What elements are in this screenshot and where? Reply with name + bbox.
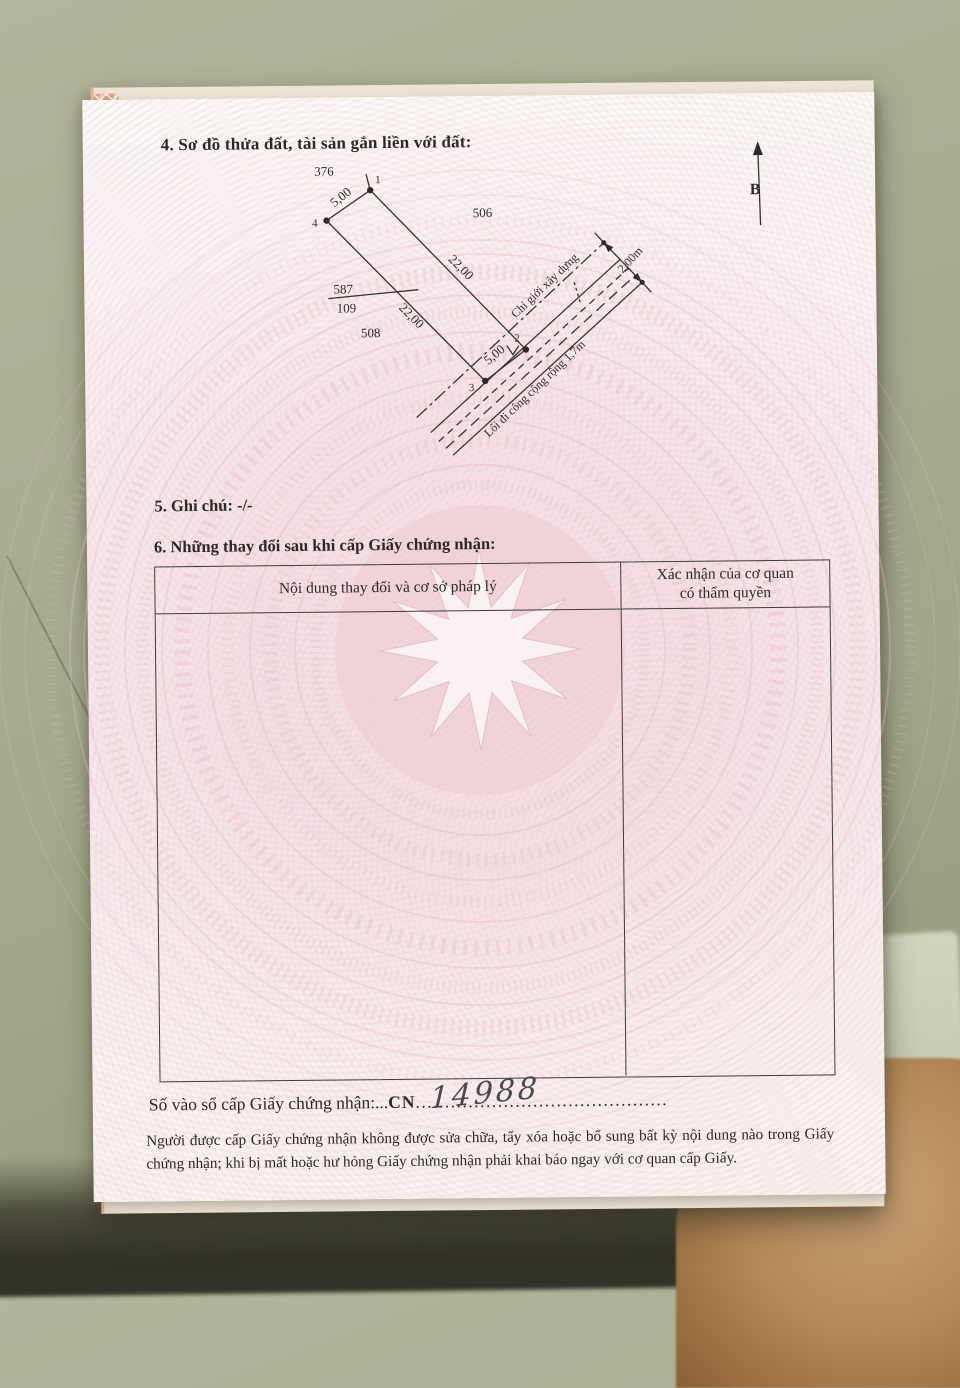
vertex1-label: 1 [375,174,381,186]
north-label: B [750,181,761,198]
construction-boundary-label: Chỉ giới xây dựng [508,250,581,320]
vertex4-label: 4 [312,218,318,230]
table-header-content: Nội dung thay đổi và cơ sở pháp lý [155,563,621,614]
dim-bottom-edge: 5,00 [481,341,508,367]
serial-label: Số vào sổ cấp Giấy chứng nhận: [149,1092,375,1114]
dim-top-edge: 5,00 [327,184,354,210]
section5-note: 5. Ghi chú: -/- [154,495,252,516]
table-header-confirmation-line2: có thẩm quyền [680,584,771,604]
table-cell-confirmation-empty [622,607,835,1075]
footer-notice: Người được cấp Giấy chứng nhận không đượ… [146,1123,834,1176]
serial-code: CN [388,1092,415,1112]
serial-dots-1: ... [375,1092,388,1112]
north-arrowhead [753,141,763,155]
dim-left-edge: 22,00 [396,300,427,331]
section6-title: 6. Những thay đổi sau khi cấp Giấy chứng… [154,534,496,558]
serial-number-line: Số vào sổ cấp Giấy chứng nhận:...CN.....… [149,1089,668,1115]
parcel-number-label: 587 [333,281,353,296]
dim-right-edge: 22,00 [446,251,477,282]
parcel-376-label: 376 [314,164,334,179]
serial-dotted-line: ........................................… [415,1089,668,1113]
vertex3-label: 3 [469,382,475,394]
construction-boundary-line [415,243,606,418]
table-body-row [156,607,835,1080]
parcel-area-label: 109 [337,300,357,315]
parcel-508-label: 508 [361,325,381,340]
changes-table: Nội dung thay đổi và cơ sở pháp lý Xác n… [154,559,835,1082]
vertex2-label: 2 [514,333,520,345]
photo-of-land-certificate: { "colors": { "paper_pink": "#f6ebed", "… [0,0,960,1280]
table-cell-content-empty [156,610,627,1081]
table-header-row: Nội dung thay đổi và cơ sở pháp lý Xác n… [155,560,829,614]
certificate-page: 4. Sơ đồ thửa đất, tài sản gắn liền với … [82,92,885,1202]
plot-diagram: 376 506 508 587 109 1 2 3 4 5,00 22,00 2… [195,137,779,493]
parcel-506-label: 506 [473,205,493,220]
table-header-confirmation-line1: Xác nhận của cơ quan [657,565,794,585]
table-header-confirmation: Xác nhận của cơ quan có thẩm quyền [621,560,829,608]
